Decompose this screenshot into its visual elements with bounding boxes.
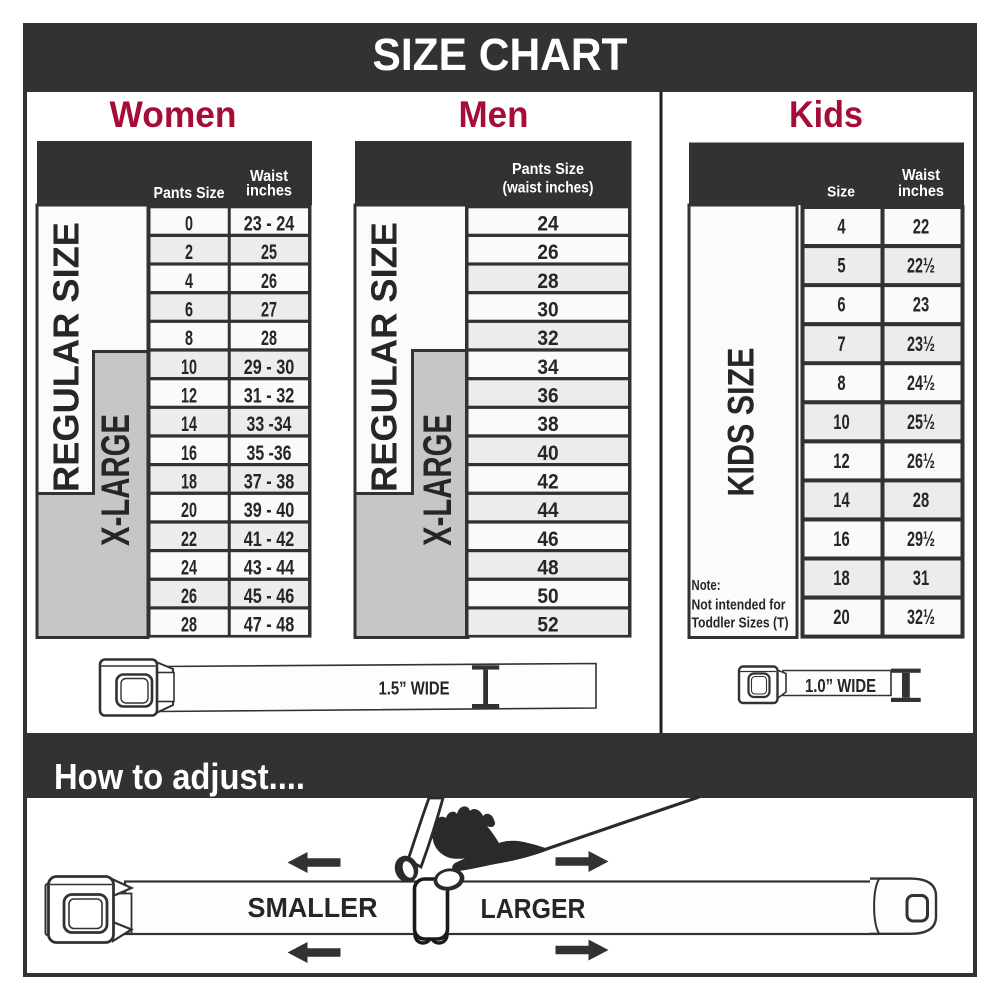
svg-text:6: 6 — [837, 294, 845, 317]
svg-text:18: 18 — [181, 470, 197, 493]
svg-text:38: 38 — [537, 413, 558, 436]
svg-text:28: 28 — [537, 270, 558, 293]
svg-text:31: 31 — [913, 567, 930, 590]
svg-text:26: 26 — [261, 270, 277, 293]
svg-text:inches: inches — [246, 183, 292, 200]
svg-text:Toddler Sizes (T): Toddler Sizes (T) — [692, 616, 789, 632]
svg-text:7: 7 — [837, 333, 845, 356]
svg-text:32: 32 — [537, 327, 558, 350]
svg-text:10: 10 — [833, 411, 849, 434]
svg-text:Not intended for: Not intended for — [692, 598, 786, 614]
svg-text:32½: 32½ — [907, 606, 935, 629]
svg-text:Women: Women — [110, 94, 237, 135]
svg-text:23: 23 — [913, 294, 929, 317]
svg-text:1.0” WIDE: 1.0” WIDE — [805, 676, 876, 696]
svg-text:1.5” WIDE: 1.5” WIDE — [379, 679, 450, 699]
svg-text:37 - 38: 37 - 38 — [244, 470, 295, 493]
svg-text:26: 26 — [537, 241, 558, 264]
svg-text:SIZE CHART: SIZE CHART — [373, 29, 628, 80]
svg-text:36: 36 — [537, 385, 558, 408]
svg-text:29 - 30: 29 - 30 — [244, 356, 295, 379]
svg-text:34: 34 — [537, 356, 558, 379]
svg-text:KIDS SIZE: KIDS SIZE — [721, 348, 762, 497]
svg-text:8: 8 — [837, 372, 845, 395]
svg-text:52: 52 — [537, 614, 558, 637]
svg-text:41 - 42: 41 - 42 — [244, 528, 295, 551]
svg-text:X-LARGE: X-LARGE — [416, 414, 460, 546]
svg-text:26½: 26½ — [907, 450, 935, 473]
svg-text:16: 16 — [181, 442, 197, 465]
svg-text:4: 4 — [837, 216, 845, 239]
svg-text:REGULAR SIZE: REGULAR SIZE — [46, 222, 87, 492]
svg-text:26: 26 — [181, 585, 197, 608]
svg-text:2: 2 — [185, 241, 193, 264]
svg-text:24: 24 — [537, 213, 558, 236]
svg-text:Pants Size: Pants Size — [154, 185, 225, 202]
svg-text:22: 22 — [181, 528, 197, 551]
svg-text:Men: Men — [459, 94, 529, 135]
svg-text:27: 27 — [261, 299, 277, 322]
svg-text:How to adjust....: How to adjust.... — [54, 756, 305, 797]
svg-text:6: 6 — [185, 299, 193, 322]
svg-text:24: 24 — [181, 556, 197, 579]
svg-text:28: 28 — [913, 489, 930, 512]
svg-text:Pants Size: Pants Size — [512, 161, 584, 178]
svg-text:22: 22 — [913, 216, 929, 239]
svg-text:Size: Size — [827, 184, 855, 201]
svg-text:46: 46 — [537, 528, 558, 551]
svg-text:33 -34: 33 -34 — [247, 413, 292, 436]
svg-text:16: 16 — [833, 528, 849, 551]
svg-text:28: 28 — [261, 327, 277, 350]
svg-text:20: 20 — [181, 499, 197, 522]
svg-text:LARGER: LARGER — [481, 893, 586, 924]
svg-text:23 - 24: 23 - 24 — [244, 213, 295, 236]
svg-text:14: 14 — [181, 413, 197, 436]
svg-text:inches: inches — [898, 183, 944, 200]
svg-text:8: 8 — [185, 327, 193, 350]
svg-text:29½: 29½ — [907, 528, 935, 551]
svg-text:35 -36: 35 -36 — [247, 442, 292, 465]
svg-text:30: 30 — [537, 299, 558, 322]
svg-text:44: 44 — [537, 499, 558, 522]
svg-text:10: 10 — [181, 356, 197, 379]
svg-text:Waist: Waist — [902, 167, 941, 184]
svg-text:14: 14 — [833, 489, 850, 512]
svg-text:47 - 48: 47 - 48 — [244, 614, 295, 637]
svg-text:48: 48 — [537, 556, 558, 579]
svg-text:(waist inches): (waist inches) — [503, 180, 594, 197]
svg-text:50: 50 — [537, 585, 558, 608]
svg-text:12: 12 — [181, 385, 197, 408]
svg-text:25: 25 — [261, 241, 277, 264]
svg-text:25½: 25½ — [907, 411, 935, 434]
svg-text:Kids: Kids — [789, 94, 863, 135]
svg-text:18: 18 — [833, 567, 850, 590]
svg-text:40: 40 — [537, 442, 558, 465]
svg-text:SMALLER: SMALLER — [248, 892, 378, 923]
svg-text:X-LARGE: X-LARGE — [94, 414, 138, 546]
svg-text:42: 42 — [537, 470, 558, 493]
svg-text:31 - 32: 31 - 32 — [244, 385, 295, 408]
svg-text:43 - 44: 43 - 44 — [244, 556, 295, 579]
svg-text:28: 28 — [181, 614, 197, 637]
svg-text:24½: 24½ — [907, 372, 935, 395]
svg-text:12: 12 — [833, 450, 849, 473]
svg-text:22½: 22½ — [907, 255, 935, 278]
svg-text:23½: 23½ — [907, 333, 935, 356]
svg-text:20: 20 — [833, 606, 849, 629]
svg-text:5: 5 — [837, 255, 845, 278]
svg-text:39 - 40: 39 - 40 — [244, 499, 295, 522]
svg-text:45 - 46: 45 - 46 — [244, 585, 295, 608]
svg-text:4: 4 — [185, 270, 193, 293]
svg-text:REGULAR SIZE: REGULAR SIZE — [364, 222, 405, 492]
svg-text:Note:: Note: — [692, 578, 721, 594]
svg-text:0: 0 — [185, 213, 193, 236]
